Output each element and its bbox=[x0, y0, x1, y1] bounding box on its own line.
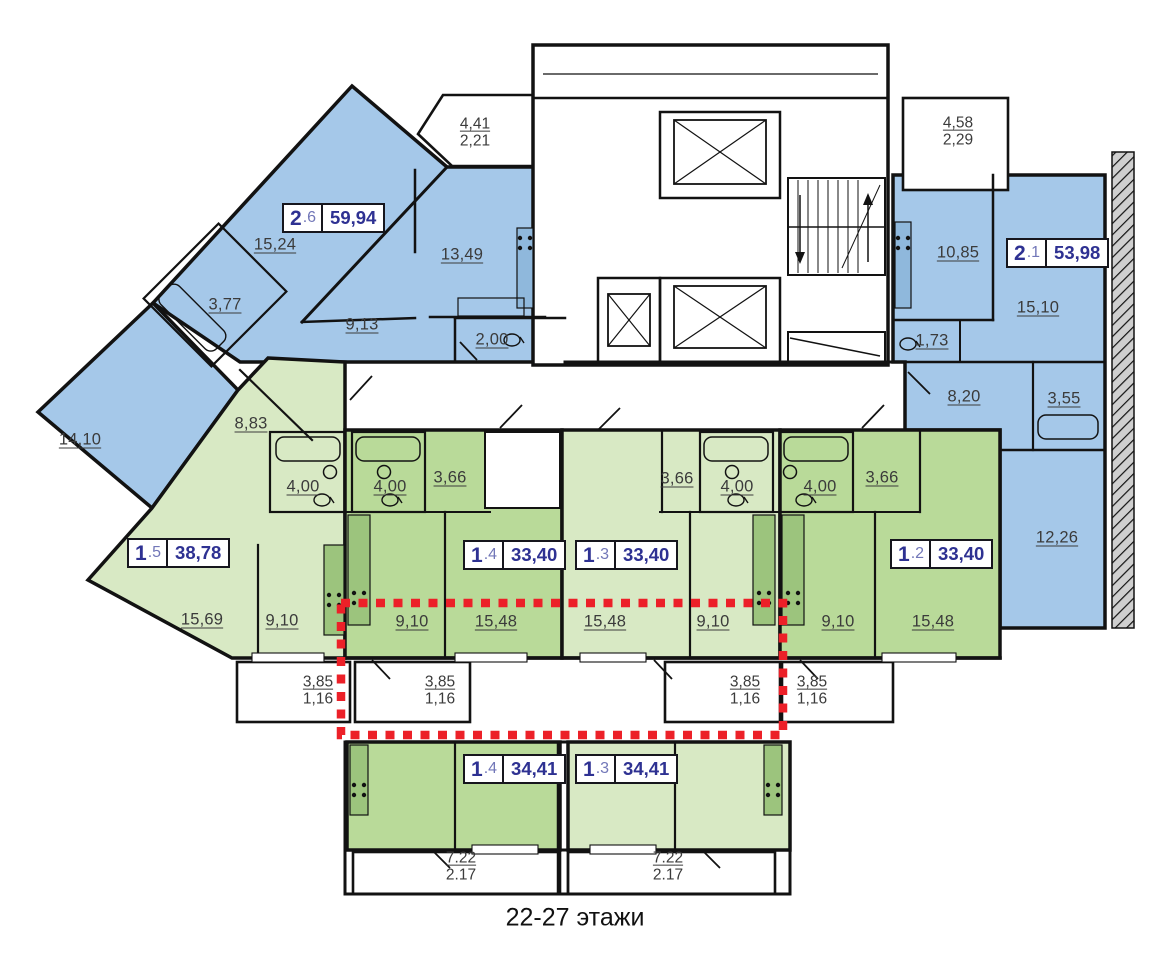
balcony-area-label: 3,851,16 bbox=[303, 674, 333, 709]
room-area-label: 3,66 bbox=[661, 470, 694, 489]
room-area-label: 4,00 bbox=[721, 478, 754, 497]
room-area-label: 3,66 bbox=[434, 469, 467, 488]
balcony-area-label: 3,851,16 bbox=[425, 674, 455, 709]
room-area-label: 4,00 bbox=[287, 478, 320, 497]
room-area-label: 14,10 bbox=[59, 431, 101, 450]
apartment-tag-1-3: 1.3 33,40 bbox=[575, 540, 678, 570]
room-area-label: 4,00 bbox=[374, 478, 407, 497]
room-area-label: 1,73 bbox=[916, 332, 949, 351]
balcony-area-label: 7.222.17 bbox=[653, 850, 683, 885]
apartment-tag-1-4-lower: 1.4 34,41 bbox=[463, 754, 566, 784]
room-area-label: 15,69 bbox=[181, 611, 223, 630]
building-core bbox=[533, 45, 888, 365]
room-area-label: 8,83 bbox=[235, 415, 268, 434]
room-area-label: 15,48 bbox=[475, 613, 517, 632]
apartment-tag-2-1: 2.1 53,98 bbox=[1006, 238, 1109, 268]
balcony-area-label: 3,851,16 bbox=[797, 674, 827, 709]
room-area-label: 9,10 bbox=[266, 612, 299, 631]
floor-plan-drawing bbox=[0, 0, 1175, 960]
floor-plan: 15,24 3,77 9,13 13,49 2,00 14,10 10,85 1… bbox=[0, 0, 1175, 960]
room-area-label: 8,20 bbox=[948, 388, 981, 407]
room-area-label: 3,66 bbox=[866, 469, 899, 488]
room-area-label: 9,10 bbox=[697, 613, 730, 632]
balcony-area-label: 4,412,21 bbox=[460, 116, 490, 151]
balcony-3-85-3 bbox=[665, 662, 780, 722]
room-area-label: 10,85 bbox=[937, 244, 979, 263]
balcony-area-label: 7.222.17 bbox=[446, 850, 476, 885]
room-area-label: 15,10 bbox=[1017, 299, 1059, 318]
apartment-tag-2-6: 2.6 59,94 bbox=[282, 203, 385, 233]
room-area-label: 15,48 bbox=[912, 613, 954, 632]
room-area-label: 4,00 bbox=[804, 478, 837, 497]
apartment-tag-1-5: 1.5 38,78 bbox=[127, 538, 230, 568]
balcony-area-label: 4,582,29 bbox=[943, 115, 973, 150]
room-area-label: 9,13 bbox=[346, 316, 379, 335]
apartment-tag-1-3-lower: 1.3 34,41 bbox=[575, 754, 678, 784]
room-area-label: 3,55 bbox=[1048, 390, 1081, 409]
room-area-label: 15,24 bbox=[254, 236, 296, 255]
room-area-label: 12,26 bbox=[1036, 529, 1078, 548]
room-area-label: 9,10 bbox=[822, 613, 855, 632]
room-area-label: 2,00 bbox=[476, 331, 509, 350]
room-area-label: 3,77 bbox=[209, 296, 242, 315]
apartment-tag-1-2: 1.2 33,40 bbox=[890, 539, 993, 569]
hatched-exterior-wall bbox=[1112, 152, 1134, 628]
floor-range-caption: 22-27 этажи bbox=[506, 904, 645, 933]
room-area-label: 9,10 bbox=[396, 613, 429, 632]
room-area-label: 15,48 bbox=[584, 613, 626, 632]
apartment-tag-1-4: 1.4 33,40 bbox=[463, 540, 566, 570]
balcony-area-label: 3,851,16 bbox=[730, 674, 760, 709]
room-area-label: 13,49 bbox=[441, 246, 483, 265]
